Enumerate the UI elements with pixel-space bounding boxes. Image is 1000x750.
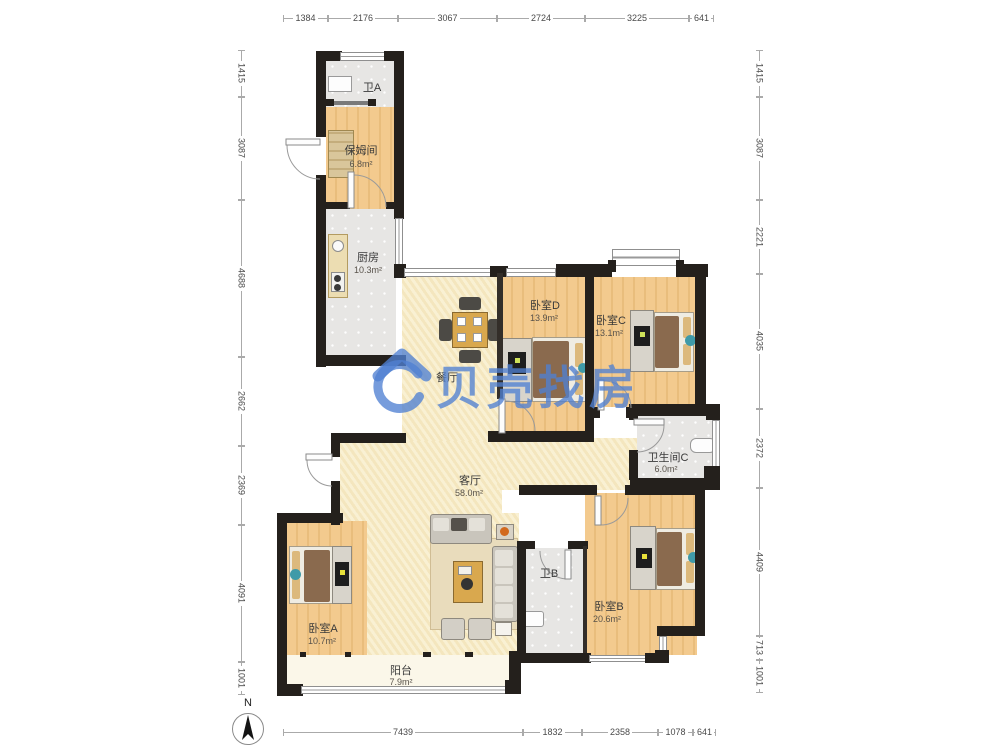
wall-stub (345, 652, 351, 657)
wall (645, 653, 669, 663)
dim-top-2: 2176 (328, 12, 398, 24)
dim-top-1: 1384 (283, 12, 328, 24)
dim-right-3: 2221 (752, 200, 766, 274)
dim-bottom-2: 1832 (523, 726, 582, 738)
room-bedroom-a-area: 10.7m² (308, 636, 336, 646)
entry-door-panel (286, 139, 320, 145)
room-bedroom-b-area: 20.6m² (593, 614, 621, 624)
wall (488, 431, 590, 442)
wall (316, 205, 326, 367)
dim-left-4: 2662 (234, 357, 248, 446)
sofa-right-cushion-2 (495, 568, 513, 584)
window-bath-c (712, 420, 720, 468)
dim-bottom-3: 2358 (582, 726, 658, 738)
wall (277, 513, 287, 695)
sofa-top-cushion-1 (433, 518, 449, 531)
dim-right-1: 1415 (752, 50, 766, 97)
wall (316, 51, 326, 137)
bedroom-a-blanket (304, 550, 330, 602)
ottoman-2 (468, 618, 492, 640)
coffee-table-decor (461, 578, 473, 590)
room-bedroom-d-area: 13.9m² (530, 313, 558, 323)
dim-left-2: 3087 (234, 97, 248, 200)
sofa-right-cushion-4 (495, 604, 513, 618)
dining-chair-top (459, 297, 481, 310)
room-kitchen-label: 厨房 (357, 249, 379, 265)
dining-plate-4 (473, 333, 482, 342)
coffee-table-tray (458, 566, 472, 575)
room-living-area: 58.0m² (455, 488, 483, 498)
sofa-top-cushion-3 (469, 518, 485, 531)
dim-top-4: 2724 (497, 12, 585, 24)
window-bath-a (340, 52, 386, 61)
room-nanny-area: 6.8m² (349, 159, 372, 169)
side-table-plant (500, 527, 509, 536)
end-table (495, 622, 512, 636)
dim-left-6: 4091 (234, 525, 248, 662)
wall-stub (326, 99, 334, 106)
sofa-top-cushion-2 (451, 518, 467, 531)
wall-stub (423, 652, 431, 657)
bedroom-c-tv-light (640, 332, 645, 337)
bedroom-b-tv-light (642, 554, 647, 559)
dim-right-7: 713 (752, 636, 766, 660)
bedroom-c-pillow-2 (683, 344, 691, 365)
bedroom-a-tv-light (340, 570, 345, 575)
window-dining-2 (506, 268, 556, 277)
dim-right-6: 4409 (752, 488, 766, 636)
wall-stub (629, 450, 638, 480)
window-bedroom-b (589, 655, 647, 662)
dining-plate-1 (457, 317, 466, 326)
entry-door-arc (287, 145, 320, 179)
room-bath-b-label: 卫B (540, 565, 558, 581)
room-balcony-label: 阳台 (390, 662, 412, 678)
dim-bottom-4: 1078 (658, 726, 693, 738)
wall (556, 264, 612, 277)
dim-right-4: 4035 (752, 274, 766, 409)
wall (394, 203, 404, 219)
wall (695, 270, 706, 412)
wall (331, 433, 340, 457)
dining-chair-left (439, 319, 452, 341)
ottoman-1 (441, 618, 465, 640)
room-kitchen-area: 10.3m² (354, 265, 382, 275)
dim-top-6: 641 (689, 12, 714, 24)
room-nanny-label: 保姆间 (345, 142, 378, 158)
wall (706, 404, 720, 420)
dim-top-5: 3225 (585, 12, 689, 24)
room-bedroom-b-label: 卧室B (594, 598, 623, 614)
wall-stub (300, 652, 306, 657)
bath-a-sink (328, 76, 352, 92)
dim-left-1: 1415 (234, 50, 248, 97)
wall-stub (465, 652, 473, 657)
wall (517, 541, 535, 549)
room-bath-a-label: 卫A (363, 79, 381, 95)
window-dining-1 (404, 268, 492, 277)
wall-stub (368, 99, 376, 106)
wall (519, 485, 597, 495)
bedroom-b-blanket (657, 532, 682, 586)
room-bath-b-floor (526, 548, 585, 653)
room-bedroom-c-label: 卧室C (596, 312, 626, 328)
kitchen-sink (332, 240, 344, 252)
room-bedroom-d-label: 卧室D (530, 297, 560, 313)
kitchen-stove-burner-2 (334, 284, 341, 291)
room-living-label: 客厅 (459, 472, 481, 488)
partition-bath-a (334, 101, 368, 105)
kitchen-stove-burner (334, 275, 341, 282)
wall (316, 355, 406, 366)
dim-left-7: 1001 (234, 662, 248, 695)
dim-bottom-1: 7439 (283, 726, 523, 738)
wall (326, 202, 350, 209)
room-balcony-area: 7.9m² (389, 677, 412, 687)
partition-bath-b (583, 546, 587, 653)
wall (331, 433, 406, 443)
dim-right-2: 3087 (752, 97, 766, 200)
dim-bottom-5: 641 (693, 726, 716, 738)
bedroom-c-blanket (655, 316, 679, 368)
floor-plan: 卫A 保姆间 6.8m² 厨房 10.3m² 餐厅 卧室D 13.9m² 卧室C… (0, 0, 1000, 750)
wall (519, 653, 591, 663)
wall (625, 485, 704, 495)
room-bedroom-c-area: 13.1m² (595, 328, 623, 338)
watermark-brand: 贝壳找房 (436, 352, 640, 418)
wall (517, 541, 526, 655)
room-bedroom-a-label: 卧室A (308, 620, 337, 636)
wall (657, 626, 705, 636)
dining-plate-2 (473, 317, 482, 326)
wall-stub (608, 260, 616, 272)
dim-left-3: 4688 (234, 200, 248, 357)
sofa-right-cushion-1 (495, 550, 513, 566)
room-hall-floor (497, 438, 637, 490)
bedroom-b-pillow-2 (686, 561, 694, 583)
dim-right-8: 1001 (752, 660, 766, 693)
window-kitchen (395, 218, 403, 266)
wall (394, 51, 404, 212)
living-side-door-panel (306, 454, 332, 460)
window-balcony (301, 686, 509, 694)
room-bath-c-label: 卫生间C (648, 449, 689, 465)
dim-left-5: 2369 (234, 446, 248, 525)
compass-icon (229, 708, 269, 748)
sofa-right-cushion-3 (495, 586, 513, 602)
wall (277, 684, 303, 696)
dim-right-5: 2372 (752, 409, 766, 488)
dining-plate-3 (457, 333, 466, 342)
bedroom-a-pillow-2 (292, 578, 300, 599)
bay-window-bedroom-c (612, 249, 680, 266)
dim-top-3: 3067 (398, 12, 497, 24)
wall (695, 484, 705, 630)
room-bath-c-area: 6.0m² (654, 464, 677, 474)
living-side-door-arc (307, 460, 332, 486)
bedroom-a-fan (290, 569, 301, 580)
